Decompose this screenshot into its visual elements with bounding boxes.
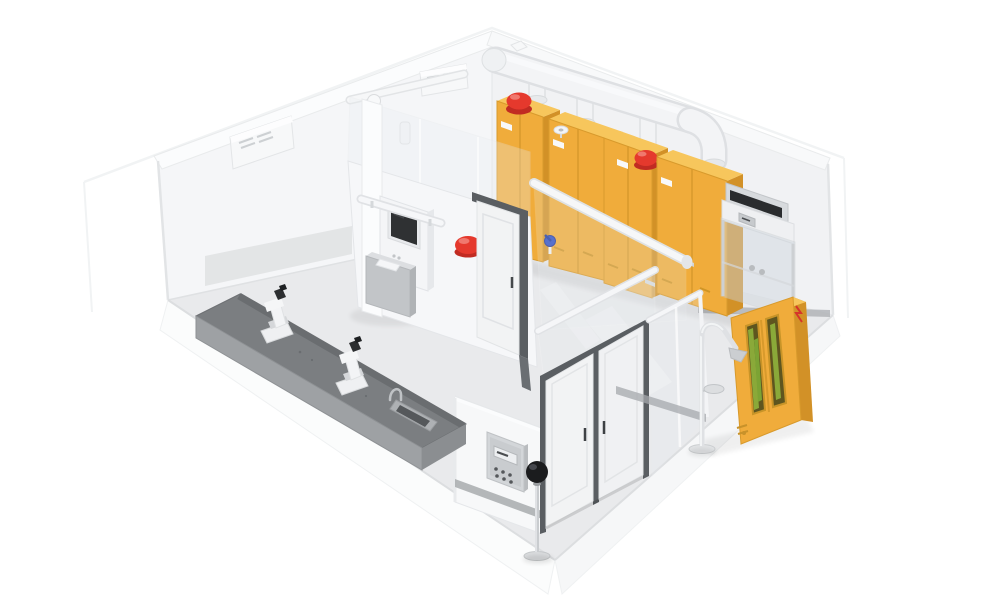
globe-sphere (526, 461, 548, 483)
door-frame-left (540, 374, 546, 534)
door-frame-right (519, 209, 528, 359)
door-frame-center (593, 346, 599, 505)
duct-end-cap (482, 49, 506, 72)
fume-hood (721, 183, 795, 318)
laboratory-3d-render (0, 0, 1000, 600)
eyewash-bowl (703, 385, 724, 394)
alarm-beacon-cabinet-3 (634, 150, 658, 170)
alarm-beacon-cabinet-1 (506, 93, 532, 115)
